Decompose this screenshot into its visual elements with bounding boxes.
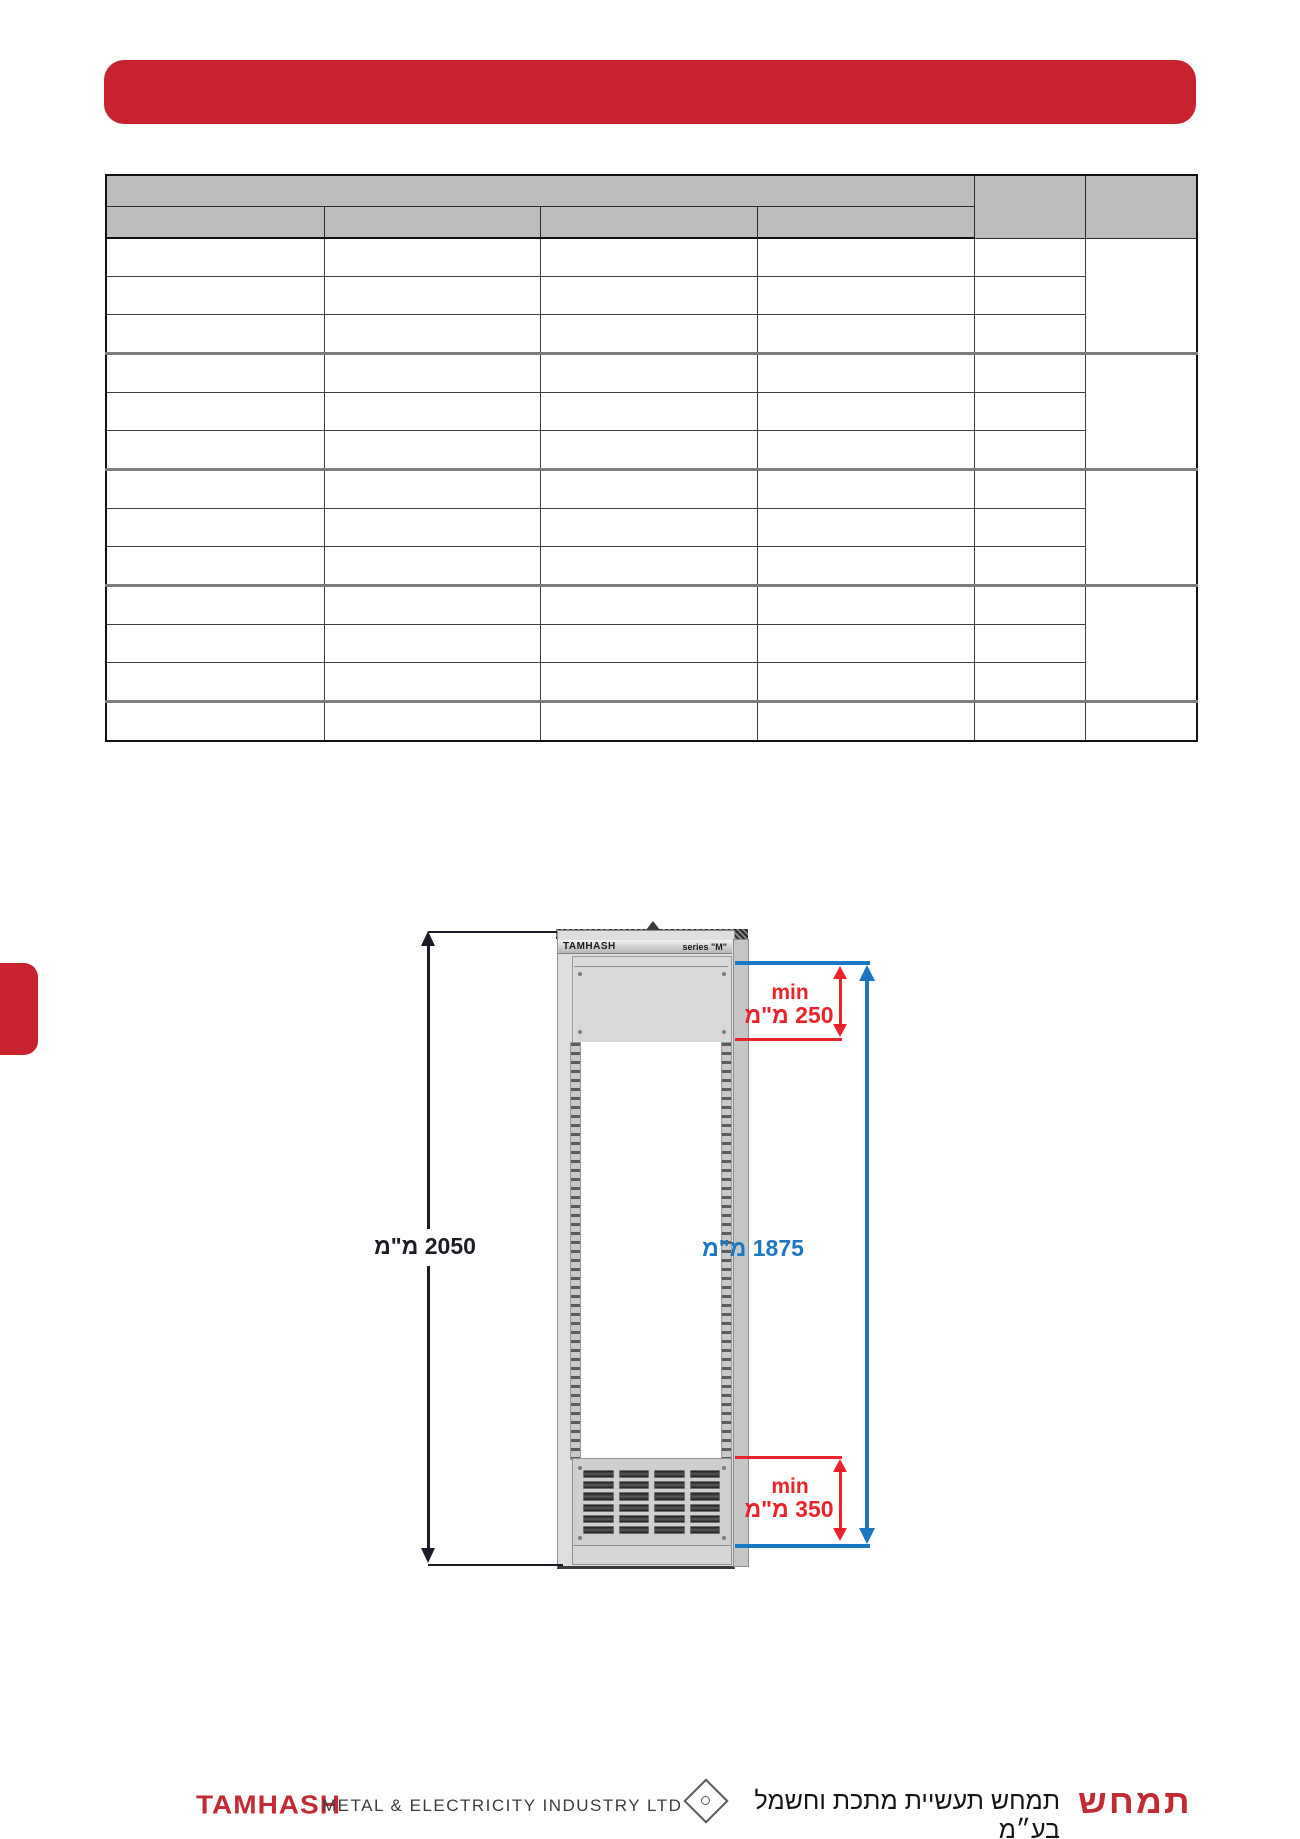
table-cell bbox=[540, 431, 757, 470]
blue-ext-line-bottom bbox=[735, 1544, 870, 1548]
table-cell bbox=[106, 470, 324, 509]
table-cell bbox=[540, 702, 757, 742]
catalog-page: TAMHASH series "M" 2050 מ"מ 1875 מ"מ min… bbox=[0, 0, 1300, 1839]
vent-slot-icon bbox=[690, 1515, 721, 1523]
vent-slot-icon bbox=[690, 1492, 721, 1500]
footer-logo-tamhash-he: תמחש bbox=[1078, 1783, 1192, 1821]
table-cell bbox=[974, 586, 1085, 625]
table-cell bbox=[974, 663, 1085, 702]
table-cell bbox=[540, 238, 757, 277]
blue-ext-line-top bbox=[735, 961, 870, 965]
table-header-cell bbox=[324, 207, 540, 239]
table-cell bbox=[106, 315, 324, 354]
dim-label-inner: 1875 מ"מ bbox=[688, 1235, 818, 1262]
vent-slot-icon bbox=[654, 1504, 685, 1512]
vent-slot-icon bbox=[619, 1526, 650, 1534]
arrow-down-icon bbox=[833, 1528, 847, 1541]
table-cell bbox=[106, 625, 324, 663]
table-header-col5-cell bbox=[974, 175, 1085, 238]
table-row bbox=[106, 277, 1197, 315]
vent-slot-icon bbox=[654, 1526, 685, 1534]
table-cell bbox=[106, 663, 324, 702]
screw-icon bbox=[578, 1466, 582, 1470]
table-cell bbox=[106, 431, 324, 470]
title-banner bbox=[104, 60, 1196, 124]
table-cell bbox=[757, 277, 974, 315]
vent-slot-icon bbox=[583, 1515, 614, 1523]
vent-slot-icon bbox=[654, 1470, 685, 1478]
table-cell bbox=[540, 393, 757, 431]
screw-icon bbox=[578, 972, 582, 976]
table-cell bbox=[106, 393, 324, 431]
table-row bbox=[106, 547, 1197, 586]
table-cell bbox=[974, 315, 1085, 354]
vent-slot-icon bbox=[583, 1470, 614, 1478]
table-row bbox=[106, 238, 1197, 277]
table-cell bbox=[757, 393, 974, 431]
table-cell bbox=[106, 509, 324, 547]
arrow-down-icon bbox=[421, 1548, 435, 1563]
arrow-down-icon bbox=[859, 1528, 875, 1544]
table-cell bbox=[324, 315, 540, 354]
table-header-row-1 bbox=[106, 175, 1197, 207]
table-cell bbox=[974, 470, 1085, 509]
vent-slot-icon bbox=[690, 1470, 721, 1478]
table-header-cell bbox=[106, 207, 324, 239]
dim-ext-line-top bbox=[428, 931, 557, 933]
vent-slot-icon bbox=[583, 1481, 614, 1489]
vent-slot-icon bbox=[690, 1526, 721, 1534]
table-cell bbox=[974, 277, 1085, 315]
vent-slot-icon bbox=[619, 1470, 650, 1478]
table-row bbox=[106, 625, 1197, 663]
table-cell bbox=[540, 547, 757, 586]
table-header-cell bbox=[540, 207, 757, 239]
table-cell bbox=[106, 702, 324, 742]
table-cell bbox=[106, 547, 324, 586]
dim-line-overall-upper bbox=[427, 945, 430, 1229]
table-cell bbox=[974, 393, 1085, 431]
footer-logo-tamhash-en: TAMHASH bbox=[196, 1790, 341, 1819]
screw-icon bbox=[578, 1536, 582, 1540]
table-header-col6-cell bbox=[1085, 175, 1197, 238]
table-cell bbox=[757, 354, 974, 393]
vent-slot-icon bbox=[654, 1515, 685, 1523]
table-cell bbox=[324, 663, 540, 702]
spec-table-body bbox=[106, 175, 1197, 741]
vent-slot-icon bbox=[619, 1492, 650, 1500]
cabinet-series-label: series "M" bbox=[682, 942, 727, 952]
table-cell bbox=[106, 238, 324, 277]
dim-line-overall-lower bbox=[427, 1266, 430, 1551]
table-cell bbox=[324, 625, 540, 663]
table-cell bbox=[757, 547, 974, 586]
vent-slot-icon bbox=[583, 1526, 614, 1534]
table-cell-merged bbox=[1085, 586, 1197, 702]
table-cell bbox=[540, 354, 757, 393]
table-cell bbox=[324, 547, 540, 586]
table-cell bbox=[540, 663, 757, 702]
table-cell bbox=[324, 470, 540, 509]
table-header-cell bbox=[757, 207, 974, 239]
table-cell bbox=[324, 702, 540, 742]
table-cell bbox=[757, 238, 974, 277]
table-cell bbox=[324, 393, 540, 431]
screw-icon bbox=[722, 1536, 726, 1540]
footer-tagline-en: METAL & ELECTRICITY INDUSTRY LTD bbox=[322, 1796, 682, 1816]
table-header-merged-cell bbox=[106, 175, 974, 207]
red-ext-line-bottom-section bbox=[735, 1456, 842, 1459]
screw-icon bbox=[578, 1030, 582, 1034]
cabinet-top-panel-seam bbox=[574, 966, 728, 967]
table-row bbox=[106, 393, 1197, 431]
cabinet-plinth bbox=[572, 1545, 732, 1565]
table-cell bbox=[324, 277, 540, 315]
arrow-up-icon bbox=[421, 931, 435, 946]
screw-icon bbox=[722, 972, 726, 976]
table-row bbox=[106, 470, 1197, 509]
table-cell bbox=[540, 509, 757, 547]
table-cell bbox=[974, 547, 1085, 586]
dim-label-overall: 2050 מ"מ bbox=[358, 1233, 492, 1260]
vent-slot-icon bbox=[583, 1504, 614, 1512]
dim-label-bottom-min-prefix: min bbox=[742, 1476, 838, 1498]
table-cell bbox=[106, 277, 324, 315]
table-cell bbox=[757, 315, 974, 354]
rack-rail-left bbox=[570, 1042, 581, 1460]
screw-icon bbox=[722, 1466, 726, 1470]
table-row bbox=[106, 354, 1197, 393]
vent-slot-icon bbox=[583, 1492, 614, 1500]
table-cell bbox=[757, 509, 974, 547]
table-cell bbox=[324, 238, 540, 277]
table-cell bbox=[540, 315, 757, 354]
table-cell bbox=[974, 625, 1085, 663]
table-cell bbox=[757, 663, 974, 702]
table-cell bbox=[757, 431, 974, 470]
vent-slot-icon bbox=[690, 1504, 721, 1512]
table-cell bbox=[540, 277, 757, 315]
spec-table bbox=[105, 174, 1198, 742]
table-cell bbox=[324, 431, 540, 470]
table-cell bbox=[757, 586, 974, 625]
table-cell bbox=[974, 238, 1085, 277]
cabinet-lift-eye bbox=[646, 921, 660, 930]
table-cell bbox=[540, 625, 757, 663]
table-cell bbox=[540, 586, 757, 625]
table-cell bbox=[974, 702, 1085, 742]
table-cell-merged bbox=[1085, 354, 1197, 470]
dim-label-top-min-value: 250 מ"מ bbox=[734, 1004, 844, 1026]
vent-slot-icon bbox=[619, 1481, 650, 1489]
table-cell bbox=[974, 509, 1085, 547]
table-cell-merged bbox=[1085, 238, 1197, 354]
table-cell bbox=[324, 586, 540, 625]
footer-company-name-he: תמחש תעשיית מתכת וחשמל בע״מ bbox=[730, 1787, 1060, 1839]
table-cell bbox=[106, 354, 324, 393]
cabinet-nameplate: TAMHASH series "M" bbox=[558, 940, 732, 954]
cabinet-top-cover-panel bbox=[572, 956, 732, 1044]
standards-mark-inner-icon bbox=[701, 1796, 710, 1805]
vent-grille bbox=[583, 1470, 720, 1534]
table-cell bbox=[974, 431, 1085, 470]
cabinet-brand-label: TAMHASH bbox=[563, 941, 616, 952]
vent-slot-icon bbox=[690, 1481, 721, 1489]
table-row bbox=[106, 431, 1197, 470]
table-cell bbox=[324, 509, 540, 547]
table-row bbox=[106, 702, 1197, 742]
section-side-tab bbox=[0, 963, 38, 1055]
table-cell-merged bbox=[1085, 470, 1197, 586]
screw-icon bbox=[722, 1030, 726, 1034]
table-cell bbox=[757, 702, 974, 742]
dim-label-top-min-prefix: min bbox=[742, 982, 838, 1004]
red-ext-line-top-section bbox=[735, 1038, 842, 1041]
vent-slot-icon bbox=[619, 1504, 650, 1512]
dim-label-bottom-min-value: 350 מ"מ bbox=[734, 1498, 844, 1520]
dim-line-inner bbox=[865, 979, 869, 1530]
vent-slot-icon bbox=[619, 1515, 650, 1523]
table-cell bbox=[757, 470, 974, 509]
table-cell bbox=[324, 354, 540, 393]
vent-slot-icon bbox=[654, 1481, 685, 1489]
table-cell-merged bbox=[1085, 702, 1197, 742]
table-row bbox=[106, 509, 1197, 547]
vent-slot-icon bbox=[654, 1492, 685, 1500]
table-cell bbox=[540, 470, 757, 509]
table-row bbox=[106, 315, 1197, 354]
dim-ext-line-bottom bbox=[428, 1564, 563, 1566]
table-cell bbox=[106, 586, 324, 625]
table-cell bbox=[757, 625, 974, 663]
table-cell bbox=[974, 354, 1085, 393]
table-row bbox=[106, 663, 1197, 702]
table-row bbox=[106, 586, 1197, 625]
